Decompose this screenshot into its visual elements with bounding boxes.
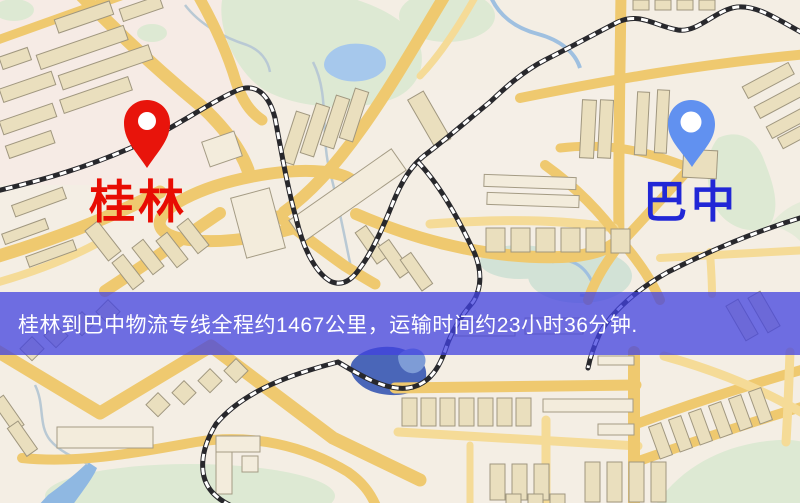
map-screenshot: 桂林 巴中 桂林到巴中物流专线全程约1467公里，运输时间约23小时36分钟. xyxy=(0,0,800,503)
map-image[interactable]: 桂林 巴中 xyxy=(0,0,800,503)
origin-pin-hole xyxy=(138,112,156,130)
route-info-text: 桂林到巴中物流专线全程约1467公里，运输时间约23小时36分钟. xyxy=(18,309,638,339)
origin-label: 桂林 xyxy=(89,176,187,228)
route-info-banner: 桂林到巴中物流专线全程约1467公里，运输时间约23小时36分钟. xyxy=(0,292,800,355)
destination-label: 巴中 xyxy=(643,178,739,227)
destination-pin-hole xyxy=(681,112,702,133)
